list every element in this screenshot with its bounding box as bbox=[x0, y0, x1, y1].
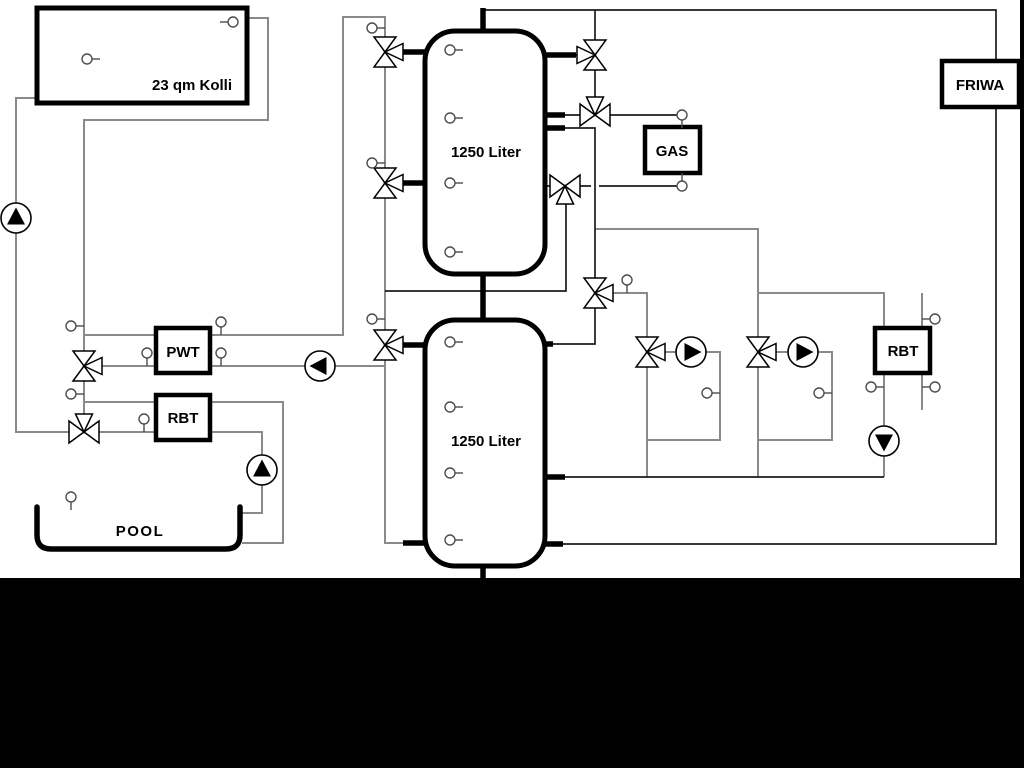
three-way-valve-icon bbox=[580, 97, 610, 126]
temperature-sensor-icon bbox=[367, 23, 385, 33]
gas-port-icon bbox=[677, 173, 687, 191]
temperature-sensor-icon bbox=[367, 158, 385, 168]
temperature-sensor-icon bbox=[66, 492, 76, 510]
three-way-valve-icon bbox=[374, 330, 403, 360]
upper-tank-label: 1250 Liter bbox=[451, 144, 521, 161]
three-way-valve-icon bbox=[374, 168, 403, 198]
rbt-pool-label: RBT bbox=[168, 410, 199, 427]
temperature-sensor-icon bbox=[142, 348, 152, 366]
three-way-valve-icon bbox=[550, 175, 580, 204]
temperature-sensor-icon bbox=[66, 389, 84, 399]
circuit-2-pump-icon bbox=[788, 337, 818, 367]
pool-label: POOL bbox=[116, 523, 165, 540]
temperature-sensor-icon bbox=[866, 382, 884, 392]
three-way-valve-icon bbox=[747, 337, 776, 367]
temperature-sensor-icon bbox=[814, 388, 832, 398]
gas-label: GAS bbox=[656, 143, 689, 160]
pwt-label: PWT bbox=[166, 344, 199, 361]
friwa-label: FRIWA bbox=[956, 77, 1004, 94]
right-edge-matte bbox=[1020, 0, 1024, 578]
temperature-sensor-icon bbox=[922, 382, 940, 392]
three-way-valve-icon bbox=[584, 278, 613, 308]
three-way-valve-icon bbox=[374, 37, 403, 67]
hot-supply-header bbox=[483, 10, 996, 544]
temperature-sensor-icon bbox=[922, 314, 940, 324]
return-pump-icon bbox=[869, 426, 899, 456]
collector-label: 23 qm Kolli bbox=[152, 77, 232, 94]
temperature-sensor-icon bbox=[622, 275, 632, 293]
three-way-valve-icon bbox=[636, 337, 665, 367]
temperature-sensor-icon bbox=[702, 388, 720, 398]
bottom-matte bbox=[0, 578, 1024, 768]
temperature-sensor-icon bbox=[216, 317, 226, 335]
hydraulic-scheme-window: 23 qm Kolli 1250 Liter 1250 Liter GAS FR… bbox=[0, 0, 1024, 768]
rbt-right-label: RBT bbox=[888, 343, 919, 360]
temperature-sensor-icon bbox=[66, 321, 84, 331]
circuit-1-pump-icon bbox=[676, 337, 706, 367]
three-way-valve-icon bbox=[577, 40, 606, 70]
temperature-sensor-icon bbox=[216, 348, 226, 366]
charging-pump-icon bbox=[305, 351, 335, 381]
pool-pump-icon bbox=[247, 455, 277, 485]
heating-circuit-1-piping bbox=[595, 293, 720, 477]
three-way-valve-icon bbox=[73, 351, 102, 381]
temperature-sensor-icon bbox=[139, 414, 149, 432]
three-way-valve-icon bbox=[69, 414, 99, 443]
temperature-sensor-icon bbox=[367, 314, 385, 324]
lower-tank-label: 1250 Liter bbox=[451, 433, 521, 450]
solar-pump-icon bbox=[1, 203, 31, 233]
